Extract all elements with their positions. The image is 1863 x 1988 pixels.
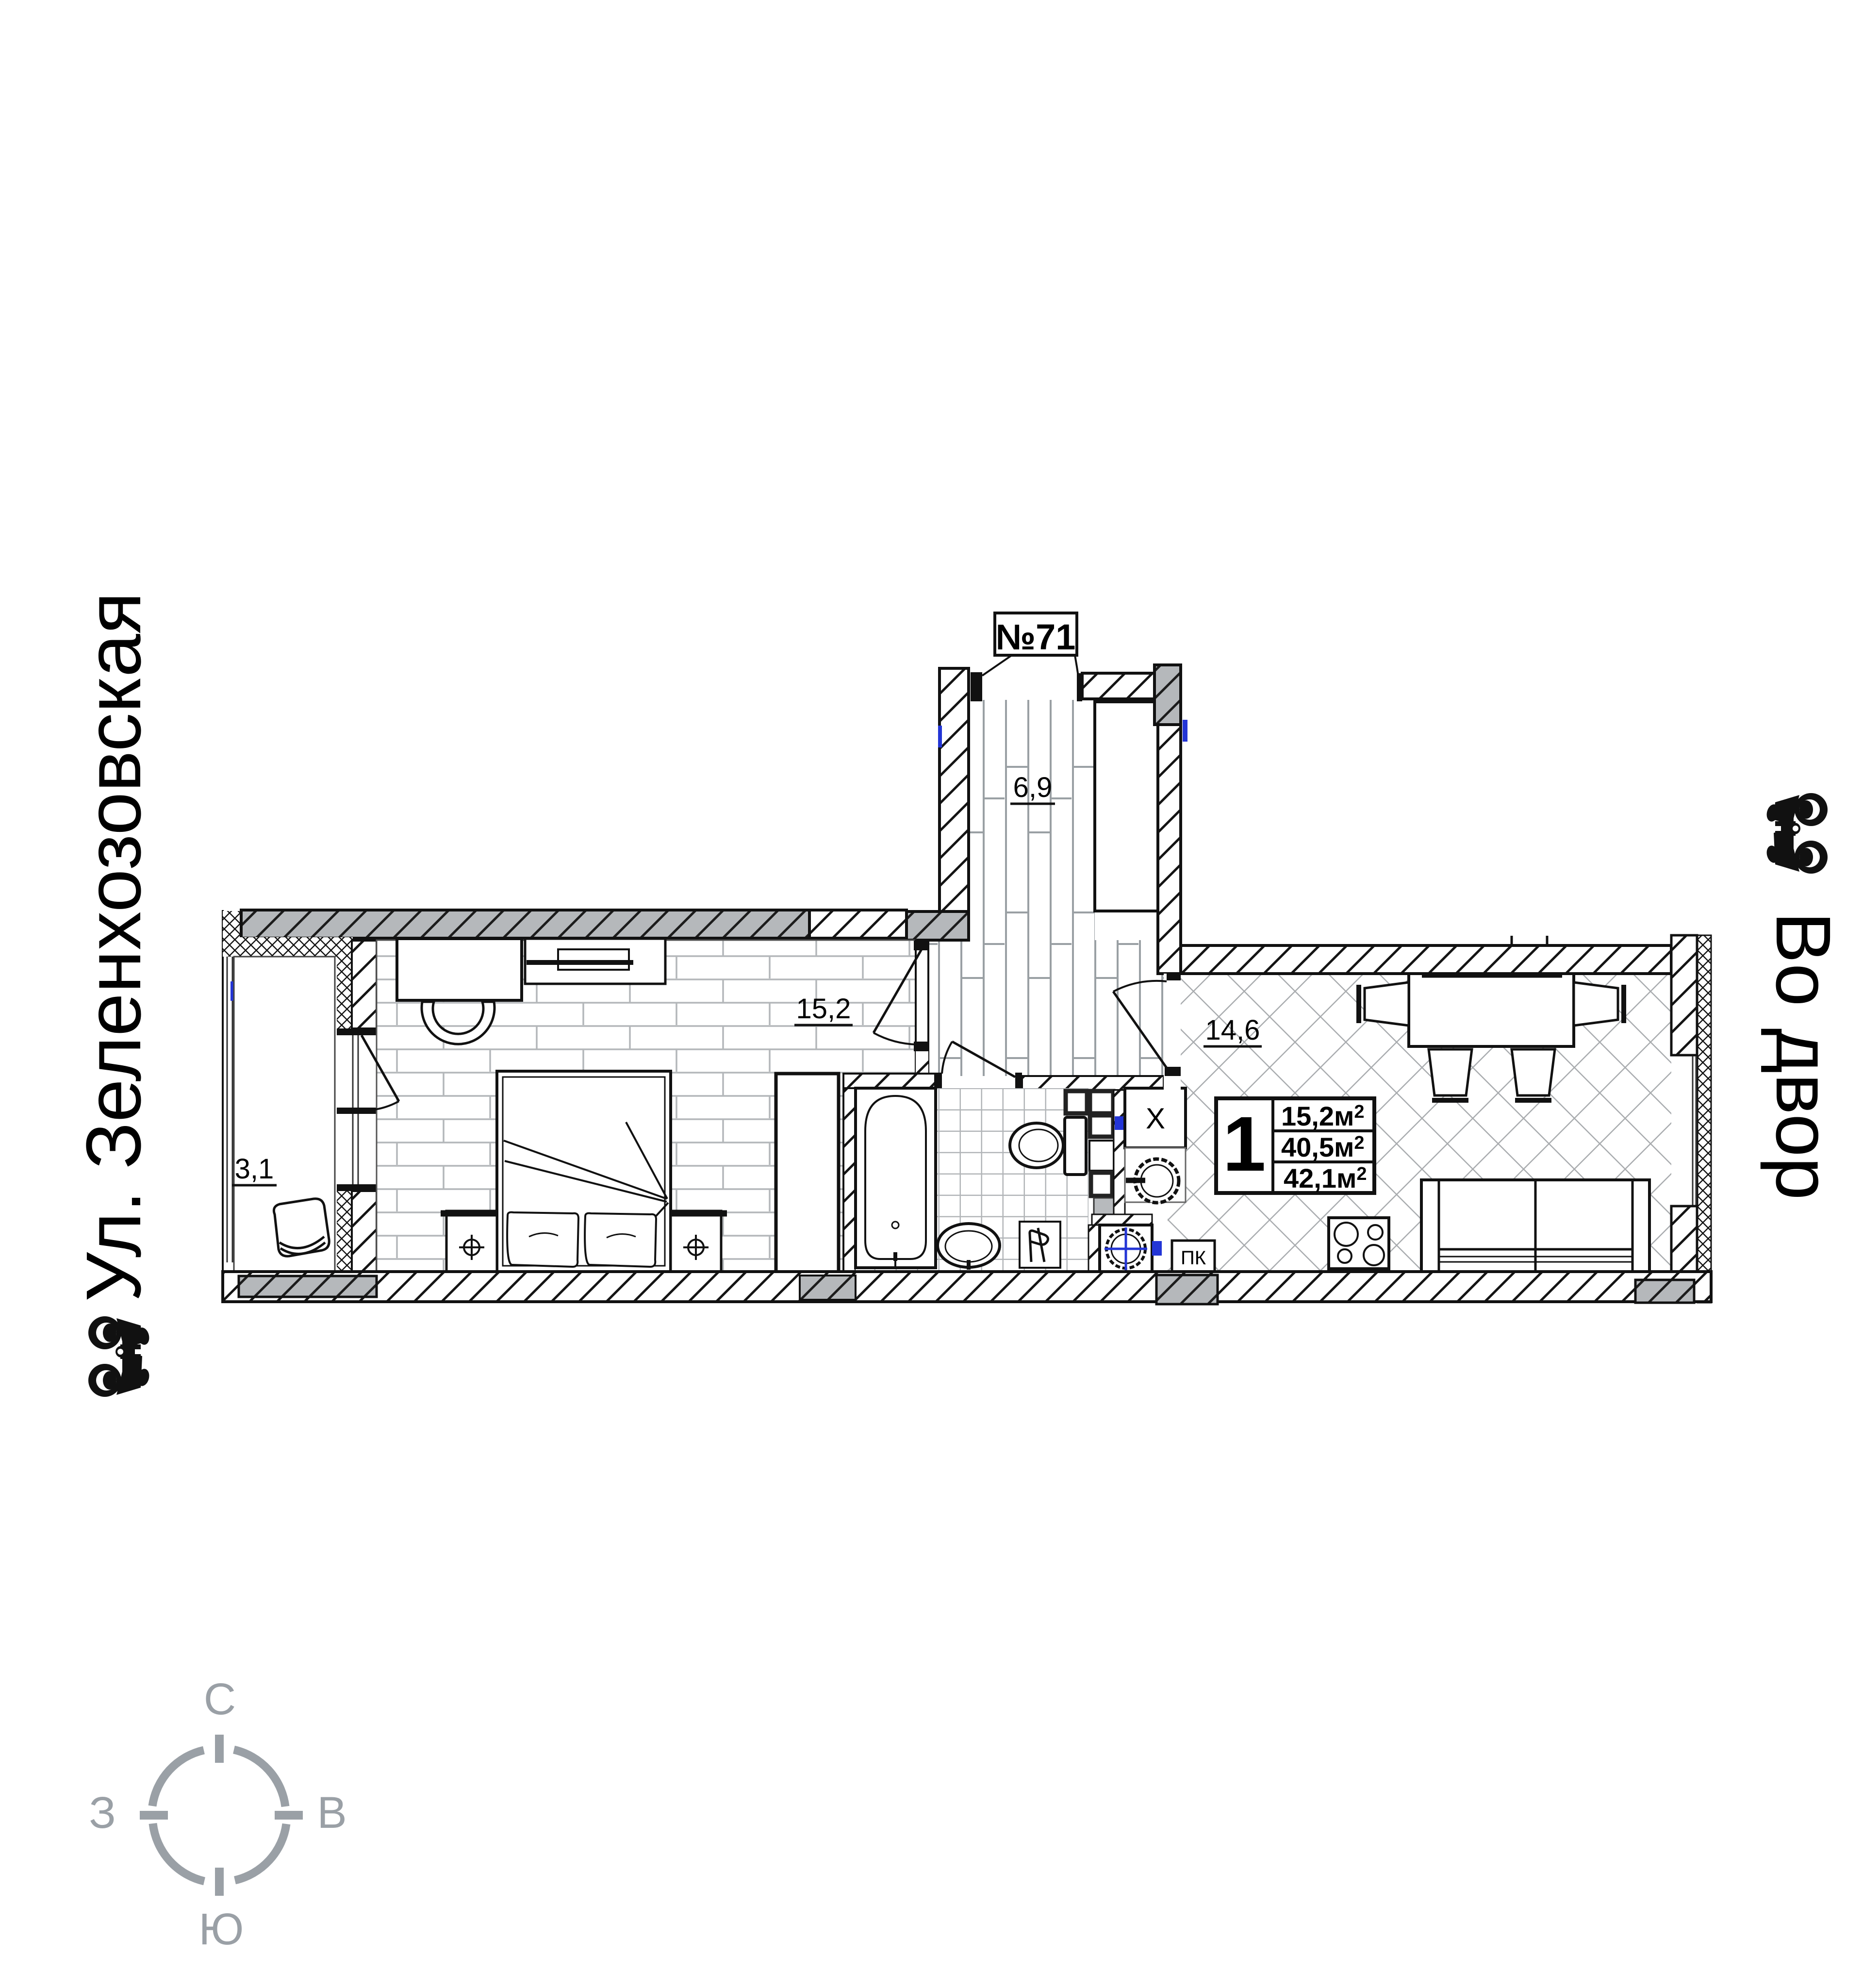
svg-text:3,1: 3,1 bbox=[235, 1153, 274, 1185]
svg-text:Во двор: Во двор bbox=[1760, 911, 1847, 1200]
svg-text:40,5м2: 40,5м2 bbox=[1281, 1132, 1365, 1162]
svg-text:42,1м2: 42,1м2 bbox=[1284, 1163, 1367, 1193]
svg-text:В: В bbox=[317, 1788, 346, 1838]
svg-text:14,6: 14,6 bbox=[1205, 1014, 1260, 1046]
svg-text:15,2м2: 15,2м2 bbox=[1281, 1101, 1365, 1131]
svg-text:С: С bbox=[204, 1674, 236, 1724]
svg-text:Ул. Зеленхозовская: Ул. Зеленхозовская bbox=[70, 592, 157, 1302]
svg-text:X: X bbox=[1146, 1102, 1165, 1135]
svg-text:6,9: 6,9 bbox=[1013, 772, 1053, 803]
svg-text:№71: №71 bbox=[996, 617, 1076, 657]
svg-text:З: З bbox=[89, 1788, 116, 1838]
svg-text:1: 1 bbox=[1223, 1100, 1266, 1187]
svg-text:Ю: Ю bbox=[199, 1905, 244, 1954]
svg-text:ПК: ПК bbox=[1181, 1247, 1206, 1269]
svg-text:15,2: 15,2 bbox=[796, 993, 851, 1025]
